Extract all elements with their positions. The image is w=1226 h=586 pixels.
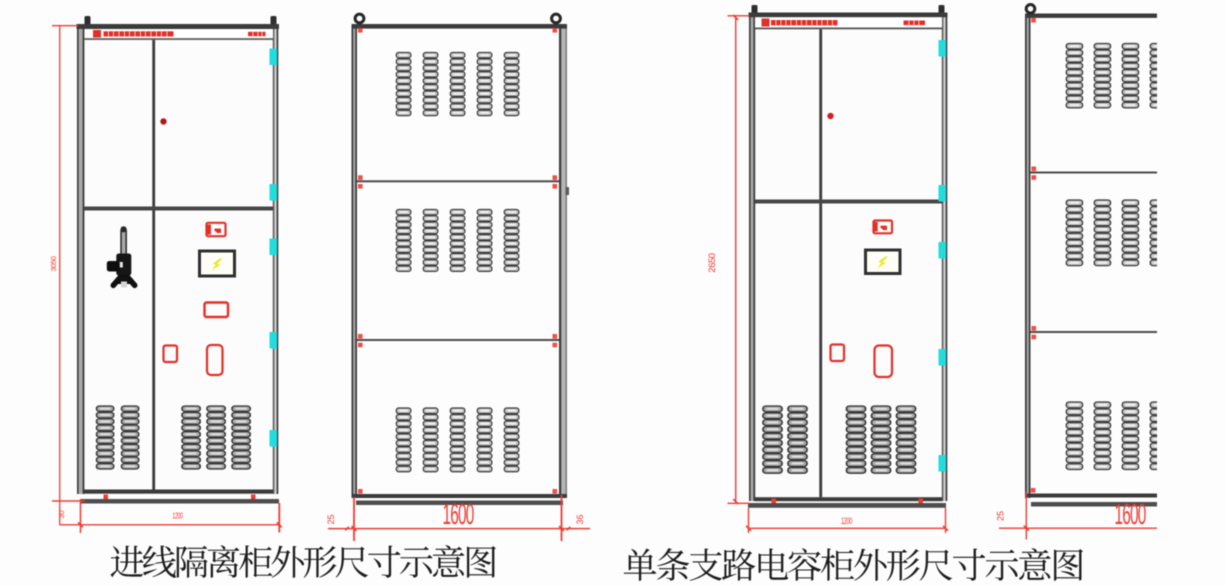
svg-text:25: 25 (996, 511, 1006, 521)
svg-text:1600: 1600 (1115, 498, 1146, 530)
svg-text:1200: 1200 (172, 512, 183, 520)
svg-text:1200: 1200 (841, 516, 852, 527)
svg-text:3050: 3050 (49, 256, 58, 271)
svg-text:36: 36 (575, 514, 585, 524)
svg-text:25: 25 (326, 514, 336, 524)
svg-text:1600: 1600 (443, 498, 474, 530)
svg-text:30: 30 (57, 510, 66, 518)
svg-text:2650: 2650 (707, 253, 718, 272)
